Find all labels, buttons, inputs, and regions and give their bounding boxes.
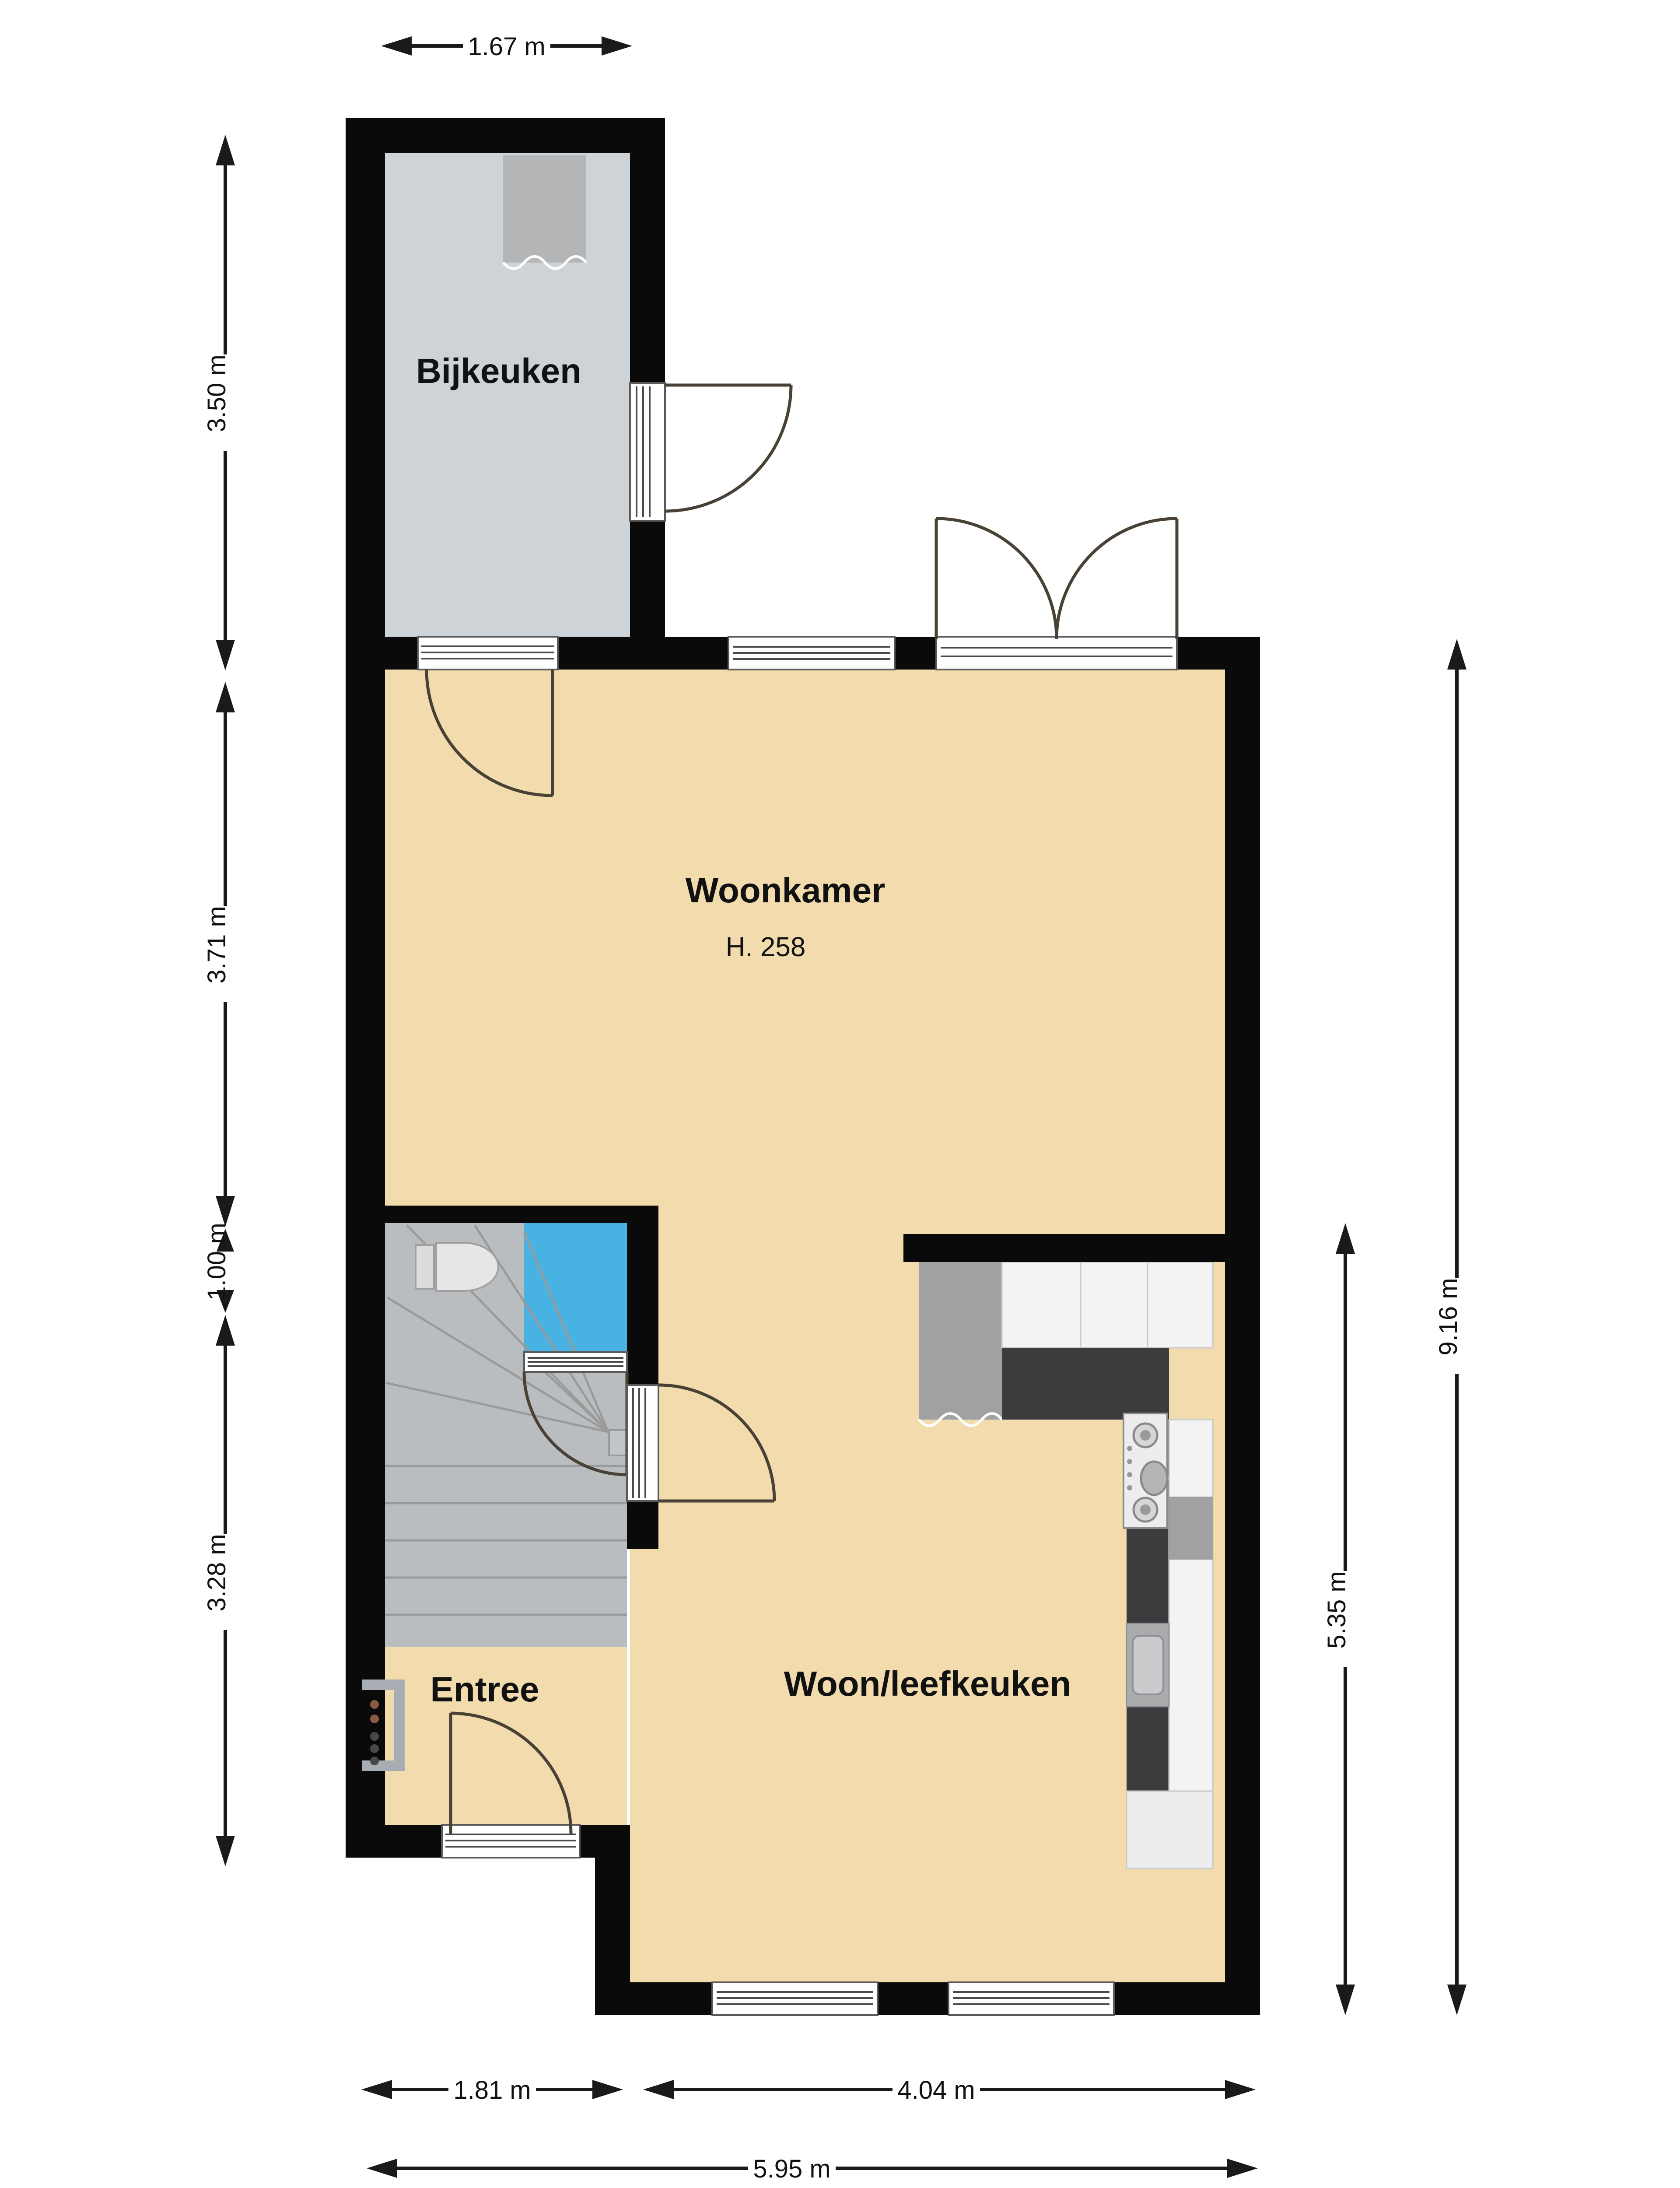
door-french-woonkamer (936, 519, 1177, 670)
svg-text:3.71 m: 3.71 m (203, 906, 231, 983)
sink-icon (1127, 1623, 1169, 1707)
label-woonkamer: Woonkamer (686, 871, 885, 910)
svg-text:3.50 m: 3.50 m (203, 354, 231, 432)
label-woonleefkeuken: Woon/leefkeuken (784, 1664, 1071, 1703)
svg-text:5.35 m: 5.35 m (1323, 1571, 1351, 1648)
dim-left-2: 3.71 m (203, 682, 242, 1227)
skylight-blue (524, 1223, 627, 1352)
kitchen-cabinet-top (1002, 1262, 1213, 1348)
kitchen-cabinet-bottom (1127, 1791, 1213, 1869)
svg-text:4.04 m: 4.04 m (897, 2076, 975, 2104)
window-kitchen-bottom-right (948, 1982, 1114, 2015)
window-skylight-sill (524, 1352, 627, 1372)
label-entree: Entree (430, 1670, 539, 1709)
dim-bottom-total: 5.95 m (367, 2153, 1258, 2183)
dim-left-3: 1.00 m (203, 1223, 234, 1313)
svg-text:1.00 m: 1.00 m (203, 1223, 231, 1300)
label-bijkeuken: Bijkeuken (416, 351, 581, 390)
dim-right-outer: 9.16 m (1434, 639, 1474, 2015)
window-woonkamer-top (728, 637, 895, 670)
svg-text:1.67 m: 1.67 m (468, 32, 545, 61)
window-kitchen-bottom-left (712, 1982, 878, 2015)
kitchen-counter-dark-top (1002, 1348, 1169, 1420)
svg-text:3.28 m: 3.28 m (203, 1534, 231, 1611)
stove-icon (1123, 1413, 1167, 1528)
dim-top: 1.67 m (381, 31, 632, 61)
kitchen-appliance-gray (919, 1262, 1002, 1420)
dim-left-4: 3.28 m (203, 1315, 242, 1866)
floor-plan: Bijkeuken Woonkamer H. 258 Entree Woon/l… (0, 0, 1680, 2188)
svg-text:9.16 m: 9.16 m (1434, 1278, 1463, 1355)
label-woonkamer-height: H. 258 (726, 932, 806, 962)
kitchen-appliance-side (1169, 1497, 1213, 1560)
dim-bottom-left: 1.81 m (361, 2075, 623, 2104)
svg-text:5.95 m: 5.95 m (753, 2155, 830, 2183)
dim-bottom-right: 4.04 m (643, 2075, 1256, 2104)
door-bijkeuken-exterior (630, 383, 791, 521)
kitchen-cabinet-side (1169, 1420, 1213, 1791)
svg-text:1.81 m: 1.81 m (453, 2076, 531, 2104)
toilet-icon (416, 1243, 498, 1291)
dim-left-1: 3.50 m (203, 135, 242, 670)
washer-icon (503, 155, 586, 269)
dim-right-inner: 5.35 m (1323, 1223, 1362, 2015)
